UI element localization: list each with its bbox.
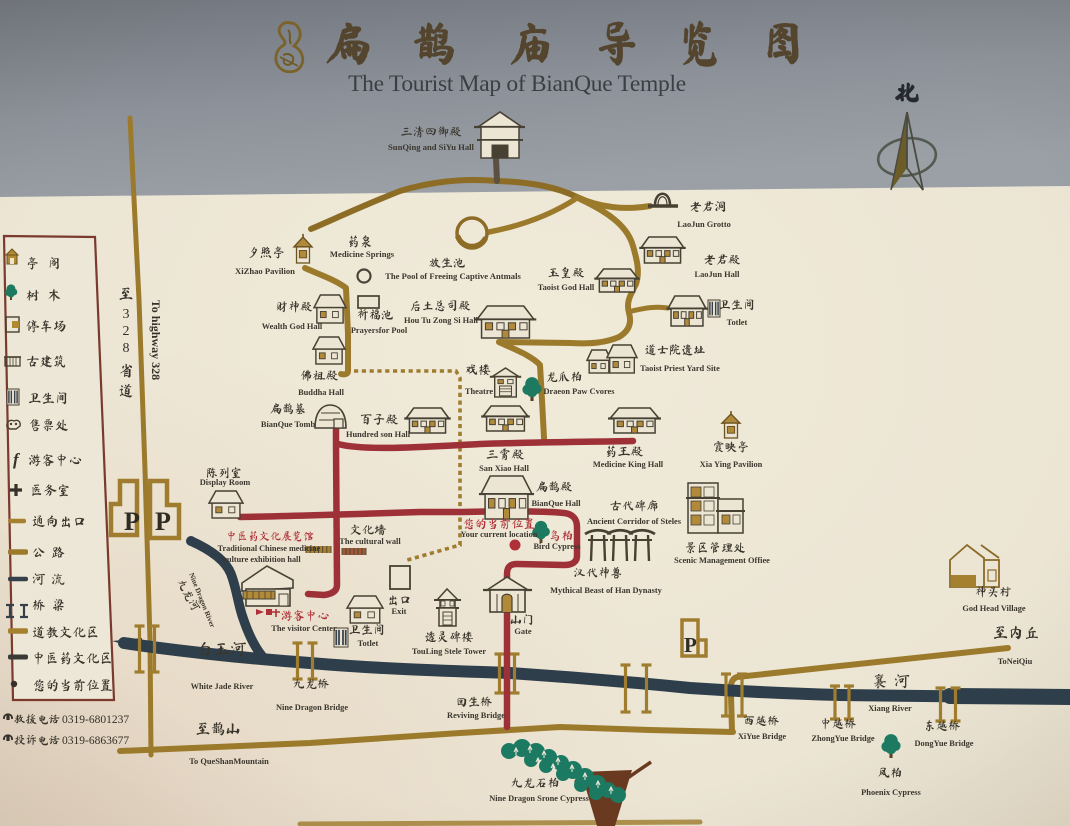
svg-text:Hou Tu Zong Si Hall: Hou Tu Zong Si Hall (404, 316, 479, 325)
svg-text:Display Room: Display Room (200, 478, 251, 487)
svg-text:The visitor Center: The visitor Center (271, 624, 337, 633)
svg-text:SunQing and SiYu Hall: SunQing and SiYu Hall (388, 142, 475, 152)
svg-text:To QueShanMountain: To QueShanMountain (189, 757, 269, 766)
svg-text:Totlet: Totlet (727, 318, 748, 327)
svg-text:Theatre: Theatre (465, 387, 494, 396)
svg-text:Buddha Hall: Buddha Hall (298, 388, 345, 397)
svg-text:Exit: Exit (392, 607, 407, 616)
svg-text:Traditional Chinese medicine: Traditional Chinese medicine (218, 544, 321, 553)
svg-text:LaoJun Hall: LaoJun Hall (695, 270, 741, 279)
svg-text:Gate: Gate (514, 627, 531, 636)
svg-text:P: P (124, 507, 140, 536)
svg-text:P: P (155, 507, 171, 536)
svg-text:Hundred son Hall: Hundred son Hall (346, 430, 411, 439)
svg-text:Xiang River: Xiang River (868, 704, 912, 713)
svg-text:2: 2 (123, 324, 130, 339)
svg-text:Draeon Paw Cvores: Draeon Paw Cvores (543, 387, 615, 396)
svg-text:8: 8 (123, 341, 130, 356)
svg-text:San Xiao Hall: San Xiao Hall (479, 464, 529, 473)
svg-text:The Tourist Map of BianQue Tem: The Tourist Map of BianQue Temple (348, 71, 686, 97)
svg-text:TouLing Stele Tower: TouLing Stele Tower (412, 647, 486, 656)
svg-text:BianQue Hall: BianQue Hall (531, 499, 581, 508)
svg-text:Scenic Management Offiee: Scenic Management Offiee (674, 556, 770, 565)
svg-text:Bird Cypress: Bird Cypress (533, 542, 581, 551)
svg-text:Nine Dragon Srone Cypress: Nine Dragon Srone Cypress (489, 794, 589, 803)
svg-text:Nine Dragon Bridge: Nine Dragon Bridge (276, 703, 348, 712)
svg-text:XiYue Bridge: XiYue Bridge (738, 732, 787, 741)
svg-text:Taoist God Hall: Taoist God Hall (538, 283, 595, 292)
svg-text:0319-6863677: 0319-6863677 (62, 735, 129, 747)
svg-text:DongYue Bridge: DongYue Bridge (914, 739, 973, 748)
svg-text:Xia Ying Pavilion: Xia Ying Pavilion (700, 460, 763, 469)
svg-text:XiZhao Pavilion: XiZhao Pavilion (235, 266, 295, 276)
svg-text:Phoenix Cypress: Phoenix Cypress (861, 788, 921, 797)
svg-text:ZhongYue Bridge: ZhongYue Bridge (811, 734, 874, 743)
svg-text:Medicine Springs: Medicine Springs (330, 249, 395, 259)
svg-text:Taoist Priest Yard Site: Taoist Priest Yard Site (640, 364, 720, 373)
svg-text:BianQue Tomb: BianQue Tomb (261, 420, 316, 429)
svg-text:Reviving Bridge: Reviving Bridge (447, 711, 505, 720)
svg-text:P: P (684, 633, 697, 657)
svg-text:ToNeiQiu: ToNeiQiu (998, 657, 1033, 666)
svg-text:White Jade River: White Jade River (191, 682, 254, 691)
svg-text:Ancient Corridor of Steles: Ancient Corridor of Steles (587, 517, 682, 526)
svg-text:LaoJun Grotto: LaoJun Grotto (677, 220, 731, 229)
svg-text:The cultural wall: The cultural wall (339, 537, 401, 546)
svg-text:culture exhibition hall: culture exhibition hall (223, 555, 301, 564)
svg-text:To highway 328: To highway 328 (149, 300, 163, 380)
svg-text:Medicine King Hall: Medicine King Hall (593, 460, 664, 469)
svg-text:Totlet: Totlet (358, 639, 379, 648)
svg-text:Mythical Beast of Han Dynasty: Mythical Beast of Han Dynasty (550, 586, 662, 595)
svg-text:God Head Village: God Head Village (962, 604, 1026, 613)
svg-text:The Pool of Freeing Captive An: The Pool of Freeing Captive Antmals (385, 271, 521, 281)
svg-text:3: 3 (123, 307, 130, 322)
svg-text:Your current location: Your current location (461, 530, 538, 539)
svg-text:Wealth God Hall: Wealth God Hall (262, 322, 323, 331)
svg-text:0319-6801237: 0319-6801237 (62, 714, 129, 726)
svg-text:Prayersfor Pool: Prayersfor Pool (351, 326, 408, 335)
